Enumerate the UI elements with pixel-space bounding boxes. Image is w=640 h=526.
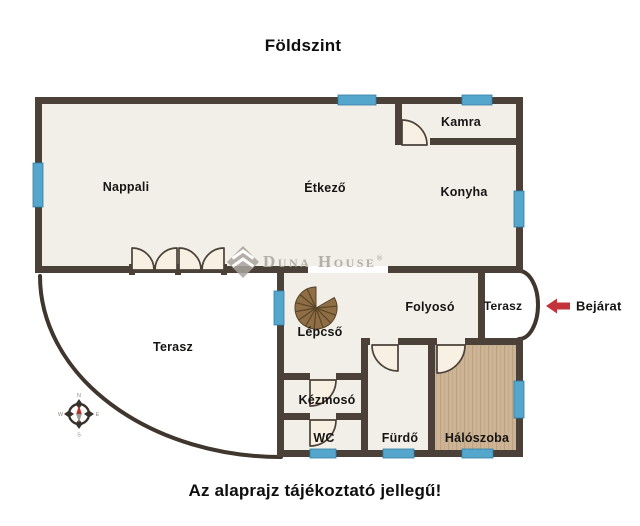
room-label-terasz-garden: Terasz bbox=[153, 340, 193, 354]
floor-plan-page: N S E W Földszint Nappali Étkező Konyha … bbox=[0, 0, 640, 526]
window-marker bbox=[338, 95, 376, 105]
compass-icon: N S E W bbox=[58, 393, 100, 439]
room-label-haloszoba: Hálószoba bbox=[445, 431, 509, 445]
window-marker bbox=[514, 381, 524, 418]
page-title: Földszint bbox=[265, 36, 341, 56]
entrance-arrow-icon bbox=[546, 299, 570, 314]
compass-n-label: N bbox=[77, 393, 81, 399]
garden-terrace-curve bbox=[40, 276, 281, 457]
room-label-folyoso: Folyosó bbox=[405, 300, 454, 314]
compass-w-label: W bbox=[58, 412, 64, 418]
window-marker bbox=[383, 449, 414, 458]
compass-s-label: S bbox=[77, 433, 81, 439]
room-label-wc: WC bbox=[313, 431, 334, 445]
window-marker bbox=[514, 191, 524, 227]
watermark-brand: Duna House bbox=[263, 252, 376, 271]
window-marker bbox=[33, 163, 43, 207]
room-label-nappali: Nappali bbox=[103, 180, 150, 194]
window-marker bbox=[274, 291, 284, 325]
room-label-kezmoso: Kézmosó bbox=[299, 393, 356, 407]
room-label-konyha: Konyha bbox=[440, 185, 487, 199]
window-marker bbox=[462, 449, 493, 458]
room-label-terasz-front: Terasz bbox=[484, 299, 522, 313]
disclaimer-text: Az alaprajz tájékoztató jellegű! bbox=[189, 481, 442, 501]
watermark-registered-mark: ® bbox=[376, 253, 382, 262]
dunahouse-watermark-text: Duna House® bbox=[263, 252, 382, 272]
room-label-lepcso: Lépcső bbox=[298, 325, 343, 339]
room-label-furdo: Fürdő bbox=[382, 431, 418, 445]
window-marker bbox=[462, 95, 492, 105]
compass-e-label: E bbox=[96, 412, 100, 418]
entrance-label: Bejárat bbox=[576, 299, 621, 314]
room-label-kamra: Kamra bbox=[441, 115, 481, 129]
window-marker bbox=[310, 449, 336, 458]
room-label-etkezo: Étkező bbox=[304, 181, 346, 195]
